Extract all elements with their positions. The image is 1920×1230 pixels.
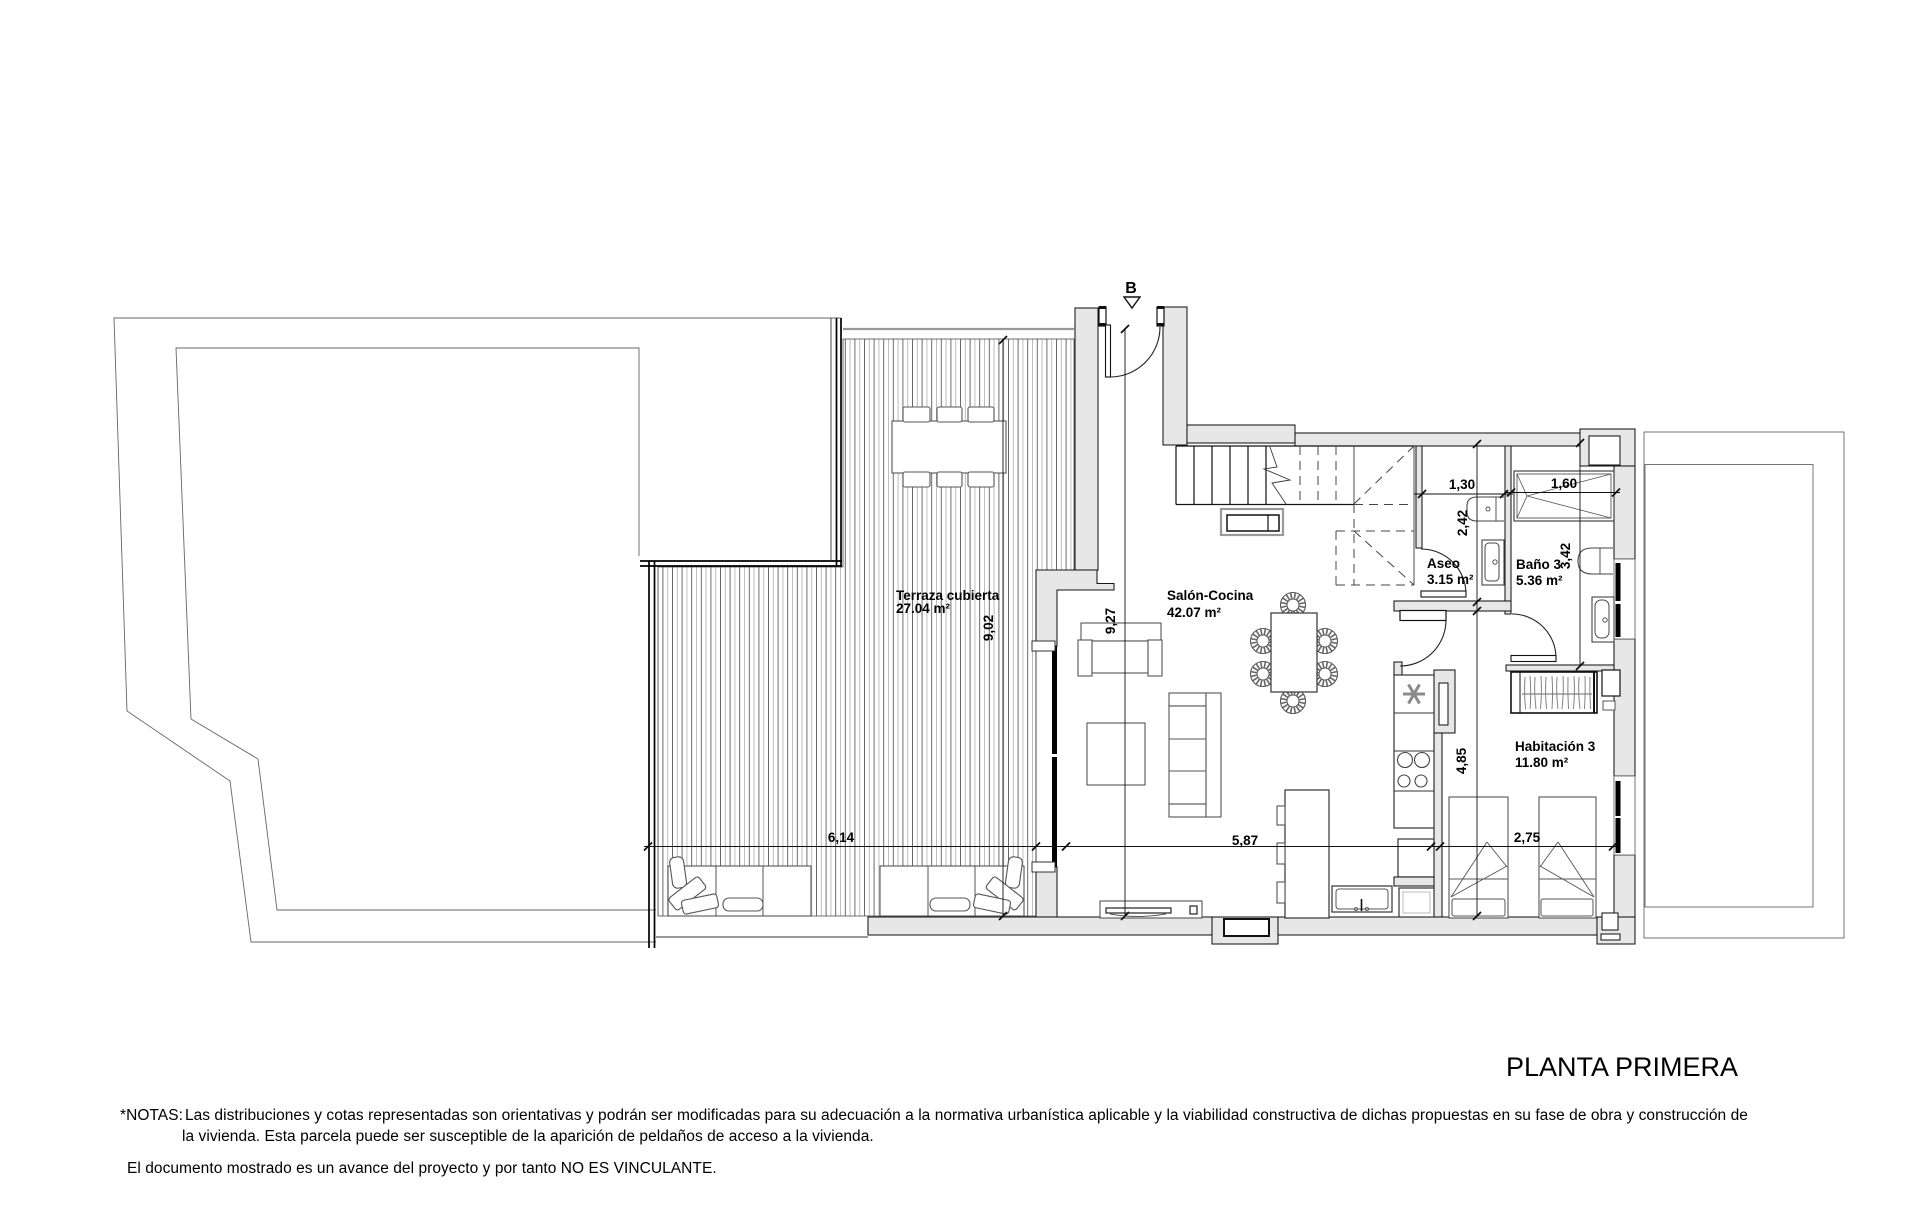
svg-text:PLANTA PRIMERA: PLANTA PRIMERA: [1506, 1052, 1738, 1082]
svg-text:9,27: 9,27: [1103, 608, 1118, 634]
svg-text:Baño 3: Baño 3: [1516, 557, 1562, 572]
svg-text:3.15 m²: 3.15 m²: [1427, 572, 1474, 587]
svg-text:*NOTAS:Las distribuciones y co: *NOTAS:Las distribuciones y cotas repres…: [120, 1107, 1748, 1124]
svg-text:5.36 m²: 5.36 m²: [1516, 573, 1563, 588]
svg-text:1,30: 1,30: [1449, 477, 1475, 492]
svg-text:Habitación 3: Habitación 3: [1515, 739, 1596, 754]
svg-text:27.04 m²: 27.04 m²: [896, 601, 951, 616]
svg-text:Aseo: Aseo: [1427, 556, 1460, 571]
svg-text:1,60: 1,60: [1551, 476, 1577, 491]
svg-text:B: B: [1125, 280, 1137, 297]
svg-text:6,14: 6,14: [828, 830, 855, 845]
svg-text:11.80 m²: 11.80 m²: [1515, 755, 1569, 770]
svg-text:4,85: 4,85: [1454, 747, 1469, 774]
svg-text:la vivienda. Esta parcela pued: la vivienda. Esta parcela puede ser susc…: [182, 1128, 874, 1145]
svg-text:42.07 m²: 42.07 m²: [1167, 605, 1222, 620]
svg-text:9,02: 9,02: [981, 615, 996, 641]
svg-text:2,75: 2,75: [1514, 830, 1541, 845]
svg-text:5,87: 5,87: [1232, 833, 1258, 848]
svg-text:2,42: 2,42: [1455, 510, 1470, 536]
svg-text:El documento mostrado es un av: El documento mostrado es un avance del p…: [127, 1160, 717, 1177]
svg-text:Salón-Cocina: Salón-Cocina: [1167, 588, 1254, 603]
